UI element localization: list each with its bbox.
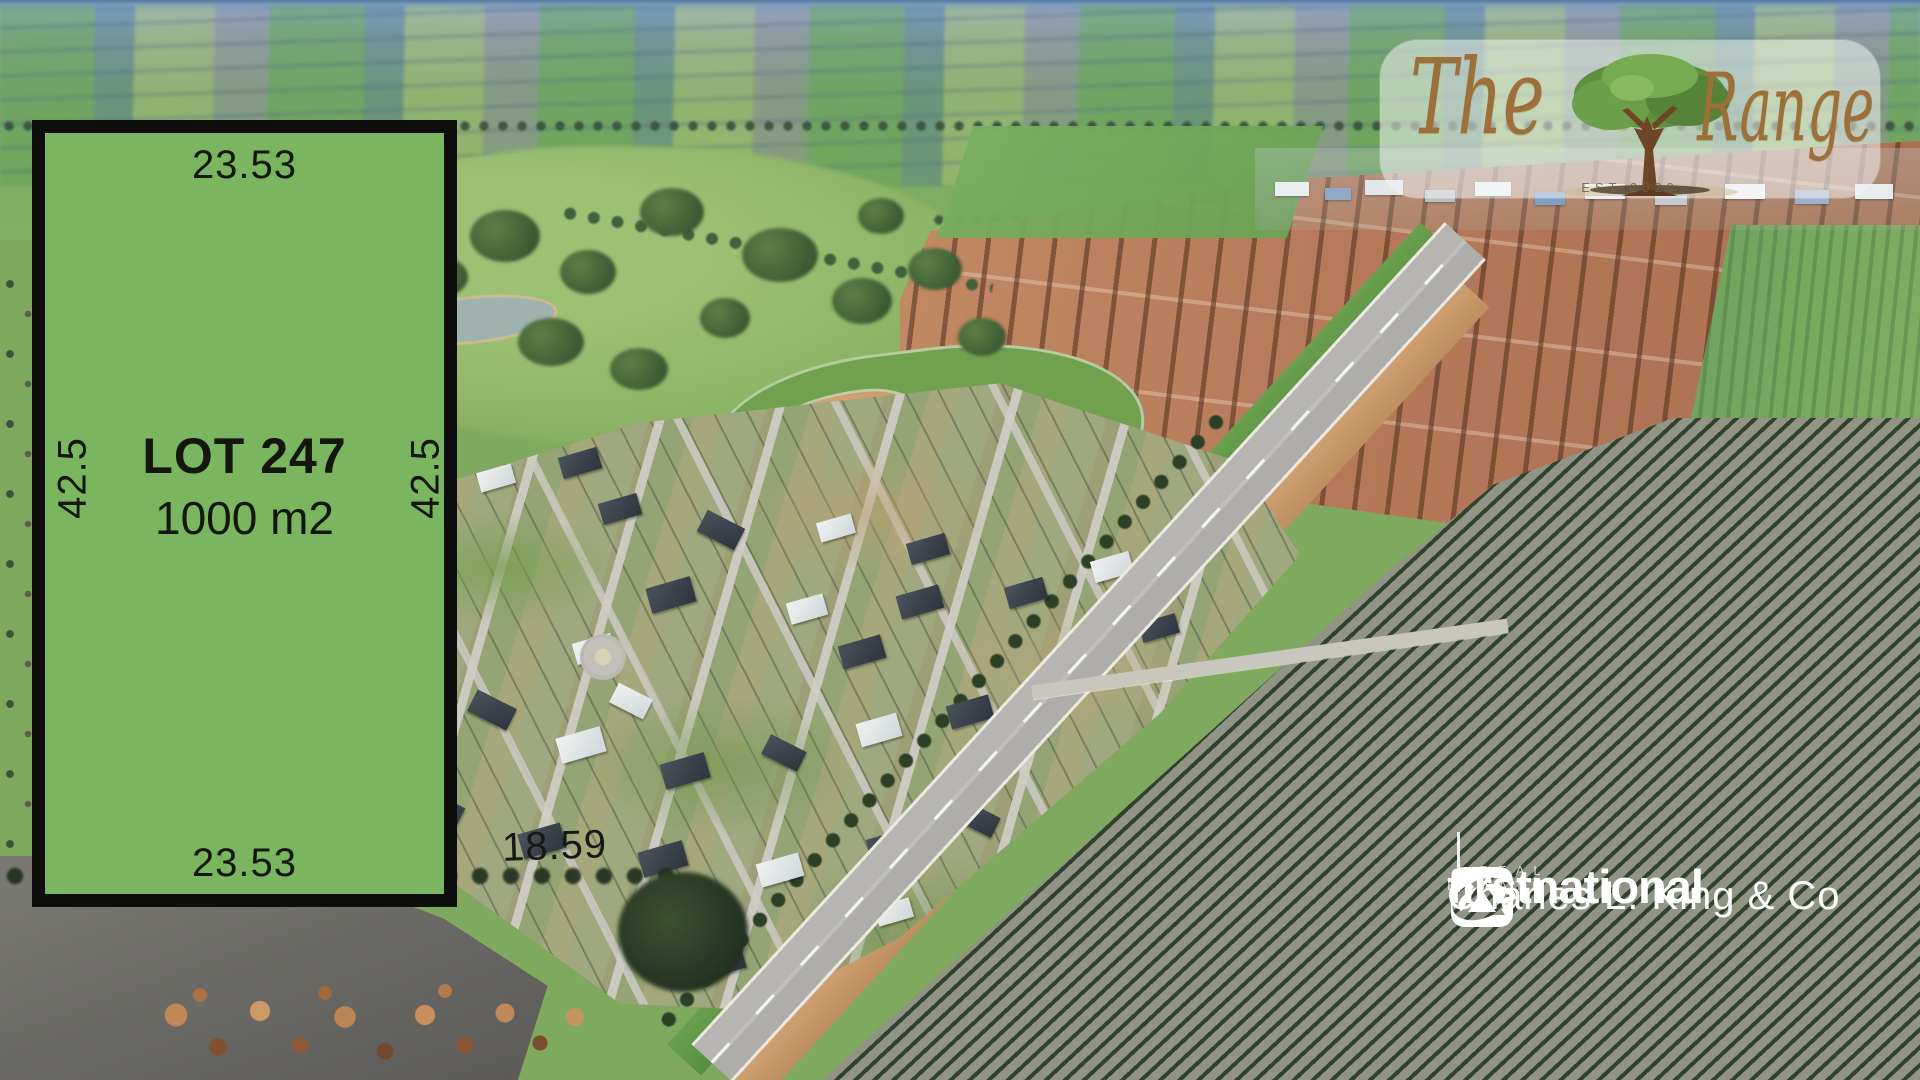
mulch-piles <box>140 975 610 1080</box>
lot-width-bottom-label: 23.53 <box>45 841 444 886</box>
shed-roof <box>1275 182 1309 196</box>
tree-cluster <box>470 210 540 262</box>
lot-number-label: LOT 247 <box>45 427 444 485</box>
tree-cluster <box>618 872 748 992</box>
tree-cluster <box>908 248 962 290</box>
roundabout <box>584 638 622 676</box>
tree-cluster <box>832 278 892 324</box>
tree-cluster <box>610 348 668 390</box>
lot-width-top-label: 23.53 <box>45 143 444 188</box>
tree-cluster <box>518 318 584 366</box>
lot-diagram: 23.53 42.5 42.5 LOT 247 1000 m2 23.53 <box>32 120 457 907</box>
agency-office-name: Charles L. King & Co <box>1447 874 1841 919</box>
tree-cluster <box>560 250 616 294</box>
tree-cluster <box>742 228 818 282</box>
aerial-estate-advert: 18.59 23.53 42.5 42.5 LOT 247 1000 m2 23… <box>0 0 1920 1080</box>
logo-word-the: The <box>1410 36 1545 158</box>
logo-established-label: EST 2020 <box>1380 180 1880 195</box>
tree-cluster <box>640 188 704 236</box>
lot-area-label: 1000 m2 <box>45 491 444 545</box>
shed-roof <box>1325 188 1351 200</box>
tree-cluster <box>958 318 1006 356</box>
frontage-dimension-label: 18.59 <box>501 822 608 871</box>
tree-cluster <box>700 298 750 338</box>
tree-cluster <box>858 198 904 234</box>
logo-word-range: Range <box>1697 54 1874 163</box>
estate-logo-card: The Range EST 2020 <box>1380 40 1880 198</box>
